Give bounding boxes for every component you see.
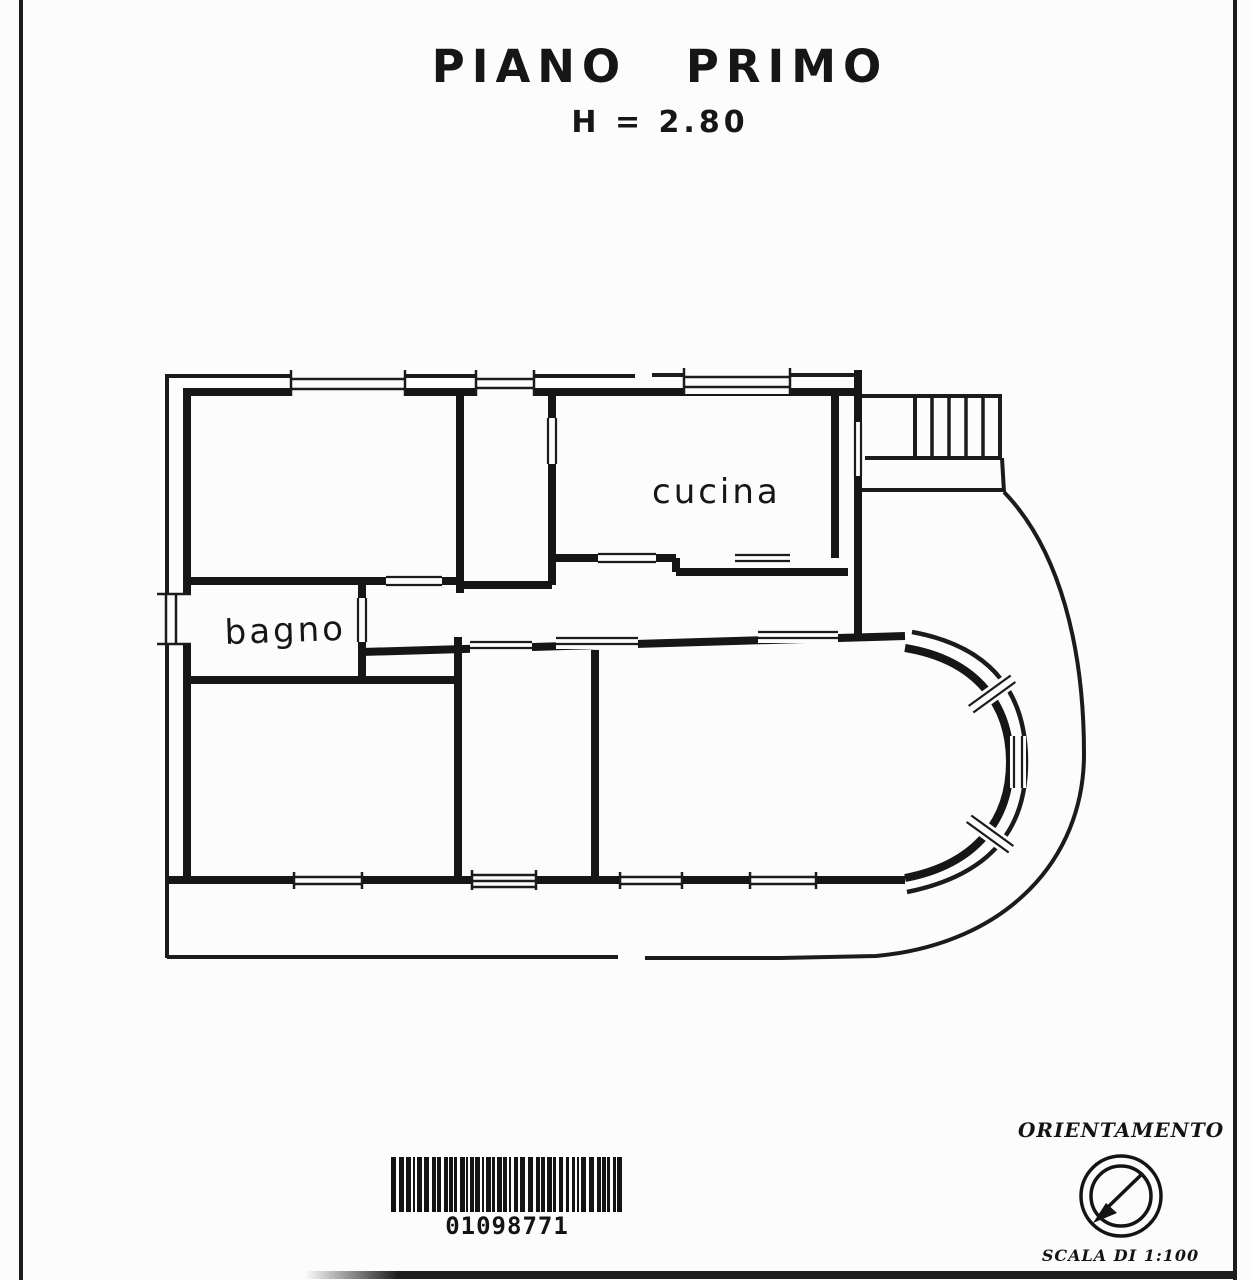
stair-treads xyxy=(932,396,983,458)
terrace-outer-curve xyxy=(780,492,1084,958)
barcode-number: 01098771 xyxy=(391,1212,623,1240)
room-label-cucina: cucina xyxy=(652,472,781,512)
scale-label: SCALA DI 1:100 xyxy=(1018,1246,1223,1265)
room-label-bagno: bagno xyxy=(224,609,347,653)
staircase xyxy=(915,396,1000,458)
orientation-block: ORIENTAMENTO SCALA DI 1:100 xyxy=(1018,1118,1223,1265)
scanned-floor-plan-page: PIANO PRIMO H = 2.80 xyxy=(0,0,1251,1280)
floor-plan: bagno cucina xyxy=(0,0,1251,1280)
barcode: 01098771 xyxy=(391,1157,623,1240)
terrace-walkway xyxy=(860,458,1004,492)
barcode-bars xyxy=(391,1157,623,1212)
compass-icon xyxy=(1075,1150,1167,1242)
exterior-walls xyxy=(167,374,1084,958)
orientation-title: ORIENTAMENTO xyxy=(1018,1118,1223,1142)
